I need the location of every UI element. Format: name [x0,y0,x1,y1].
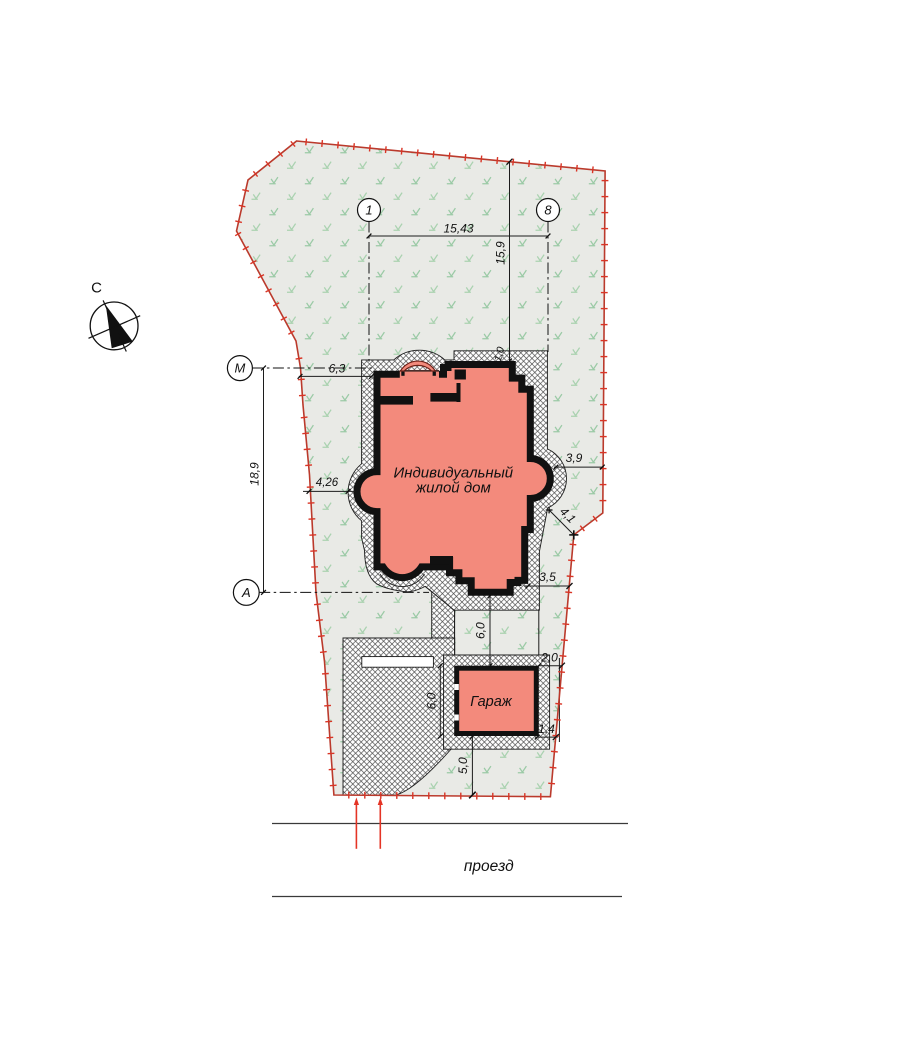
svg-text:жилой дом: жилой дом [415,480,491,497]
svg-text:2,0: 2,0 [540,650,558,664]
svg-text:проезд: проезд [464,858,514,875]
svg-text:6,0: 6,0 [424,692,438,709]
svg-text:15,43: 15,43 [443,222,473,236]
svg-text:3,5: 3,5 [539,570,556,584]
svg-text:8: 8 [544,203,552,218]
svg-text:5,0: 5,0 [456,757,470,774]
svg-text:4,26: 4,26 [316,477,339,489]
svg-text:6,3: 6,3 [329,361,346,375]
svg-text:1: 1 [365,203,372,218]
svg-text:18,9: 18,9 [247,462,261,486]
svg-text:6,0: 6,0 [474,622,488,639]
svg-text:3,9: 3,9 [566,451,583,465]
svg-text:Гараж: Гараж [470,694,513,710]
svg-text:М: М [234,361,245,376]
svg-text:1,4: 1,4 [538,722,555,736]
svg-text:С: С [91,280,102,297]
svg-text:15,9: 15,9 [494,241,508,265]
svg-text:А: А [241,585,251,600]
